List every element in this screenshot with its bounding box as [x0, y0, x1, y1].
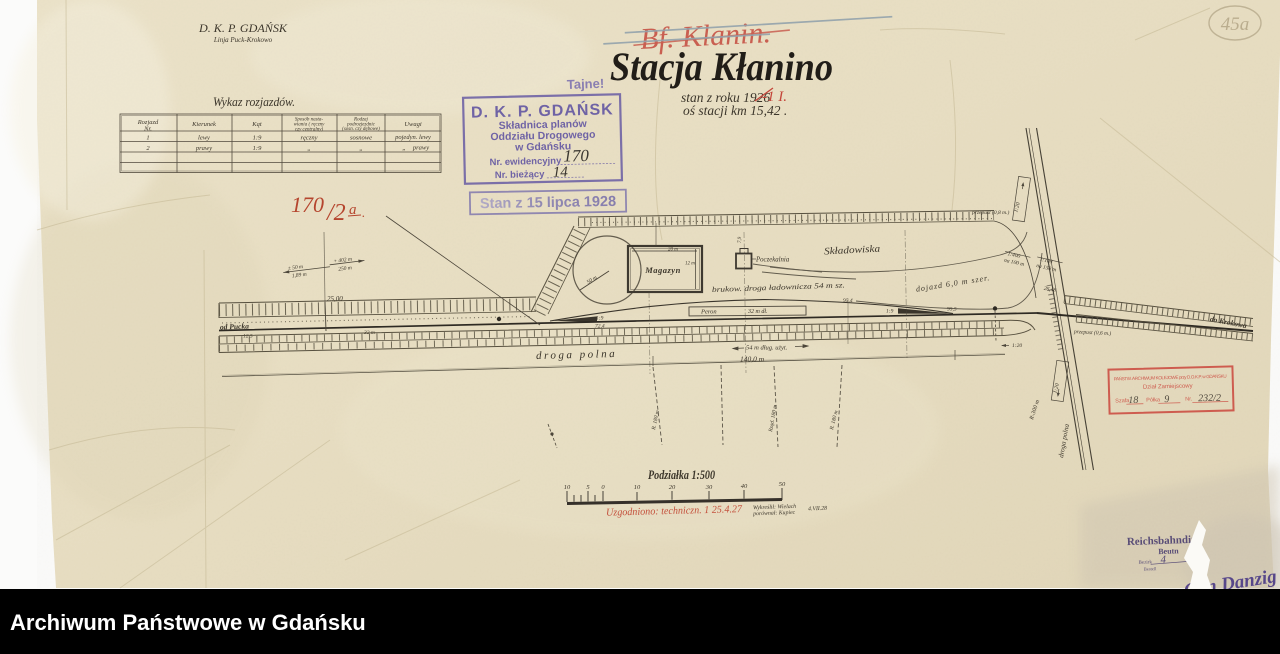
svg-text:32 m dł.: 32 m dł.: [747, 309, 768, 315]
svg-text:Nr.: Nr.: [1185, 396, 1193, 402]
svg-text:Peron: Peron: [700, 309, 717, 316]
svg-text:50: 50: [779, 481, 786, 488]
svg-text:7,9: 7,9: [738, 236, 743, 243]
svg-text:20: 20: [669, 484, 676, 491]
svg-text:Kąt: Kąt: [251, 121, 262, 128]
svg-text:.: .: [362, 205, 365, 220]
svg-text:Stacja Kłanino: Stacja Kłanino: [610, 44, 833, 89]
svg-text:232/2: 232/2: [1198, 393, 1221, 405]
svg-text:Linja Puck-Krokowo: Linja Puck-Krokowo: [213, 36, 273, 44]
svg-text:25,00: 25,00: [327, 295, 343, 303]
svg-text:1:9: 1:9: [596, 316, 604, 322]
svg-text:„: „: [307, 145, 311, 152]
svg-text:14: 14: [553, 164, 569, 180]
svg-text:Kierunek: Kierunek: [191, 121, 216, 128]
svg-text:Archiwum Państwowe w Gdańsku: Archiwum Państwowe w Gdańsku: [10, 610, 366, 635]
svg-text:Nr. ewidencyjny: Nr. ewidencyjny: [489, 156, 562, 169]
svg-text:95,5: 95,5: [947, 307, 957, 313]
svg-text:4: 4: [1160, 554, 1166, 566]
svg-text:„: „: [359, 145, 363, 152]
svg-text:lewy: lewy: [198, 135, 210, 142]
svg-text:45a: 45a: [1221, 14, 1250, 35]
svg-text:Stan z 15 lipca 1928: Stan z 15 lipca 1928: [480, 194, 616, 212]
svg-text:prawy: prawy: [412, 145, 429, 152]
svg-text:Nr. bieżący: Nr. bieżący: [495, 169, 546, 181]
svg-text:54 m dług. użyt.: 54 m dług. użyt.: [746, 345, 788, 352]
svg-text:4.VII.28: 4.VII.28: [808, 505, 827, 513]
svg-text:170: 170: [563, 146, 589, 166]
svg-text:droga polna: droga polna: [536, 348, 617, 362]
svg-text:(sosn. czy dębowe): (sosn. czy dębowe): [342, 127, 380, 132]
svg-text:Bestell: Bestell: [1144, 566, 1157, 571]
svg-text:oś stacji km 15,42 .: oś stacji km 15,42 .: [683, 103, 787, 118]
svg-text:40: 40: [741, 483, 748, 490]
svg-text:18: 18: [1128, 395, 1138, 406]
svg-text:przepust (0,8 m.): przepust (0,8 m.): [971, 209, 1009, 216]
svg-text:„: „: [402, 145, 406, 152]
svg-text:D. K. P. GDAŃSK: D. K. P. GDAŃSK: [198, 21, 288, 35]
svg-text:1:9: 1:9: [253, 135, 262, 142]
svg-text:12 m: 12 m: [685, 262, 695, 267]
svg-text:1: 1: [146, 135, 149, 142]
svg-text:140,0 m: 140,0 m: [740, 355, 765, 364]
svg-text:1:9: 1:9: [253, 145, 262, 152]
svg-text:1:20: 1:20: [1012, 343, 1022, 349]
svg-text:Bezirk: Bezirk: [1139, 560, 1153, 565]
svg-text:20 m: 20 m: [668, 248, 678, 253]
svg-text:Tajne!: Tajne!: [567, 76, 605, 92]
svg-text:prawy: prawy: [195, 145, 212, 152]
svg-text:10: 10: [634, 484, 641, 491]
svg-text:Uwagi: Uwagi: [404, 121, 422, 128]
svg-text:/2: /2: [325, 200, 346, 226]
svg-text:12,5: 12,5: [243, 334, 253, 340]
svg-text:9: 9: [1164, 394, 1169, 405]
svg-text:pojedyn. lewy: pojedyn. lewy: [394, 134, 431, 141]
svg-text:Podziałka 1:500: Podziałka 1:500: [648, 468, 716, 482]
svg-text:Półka: Półka: [1146, 397, 1161, 403]
svg-text:Wykaz rozjazdów.: Wykaz rozjazdów.: [213, 95, 295, 109]
svg-text:Nr.: Nr.: [143, 126, 152, 133]
svg-text:od Pucka: od Pucka: [220, 322, 250, 332]
svg-text:10: 10: [564, 484, 571, 491]
svg-text:sosnowe: sosnowe: [350, 135, 372, 142]
svg-text:1:9: 1:9: [886, 309, 894, 315]
svg-text:czy centralny): czy centralny): [295, 128, 324, 133]
svg-text:Magazyn: Magazyn: [644, 265, 681, 275]
svg-text:170: 170: [291, 192, 324, 217]
svg-text:Poczekalnia: Poczekalnia: [755, 257, 790, 264]
svg-text:ręczny: ręczny: [301, 135, 318, 142]
svg-text:30: 30: [705, 484, 713, 491]
